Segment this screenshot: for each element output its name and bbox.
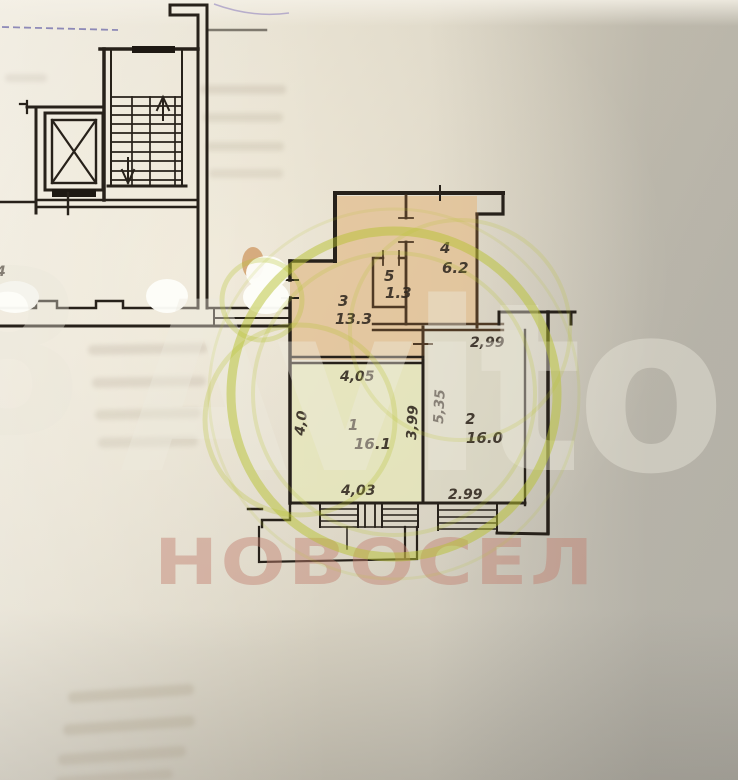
purple-pen-arc: [214, 4, 289, 14]
portal-watermark-glyph: 8: [0, 224, 86, 486]
stair-up-arrow-icon: [157, 97, 169, 120]
floor-plan-photo: 1 16.1 2 16.0 3 13.3 4 6.2 5 1.3 2,99 4,…: [0, 0, 738, 780]
blue-pen-mark: [2, 27, 118, 30]
portal-watermark: 8 Avito: [0, 209, 720, 579]
elevator-sill-bar: [52, 189, 96, 197]
agency-watermark: НОВОСЕЛ: [154, 526, 596, 599]
elevator-x-icon: [52, 120, 96, 183]
floor-plan-drawing: 1 16.1 2 16.0 3 13.3 4 6.2 5 1.3 2,99 4,…: [0, 0, 738, 780]
landing-bar: [132, 46, 175, 53]
